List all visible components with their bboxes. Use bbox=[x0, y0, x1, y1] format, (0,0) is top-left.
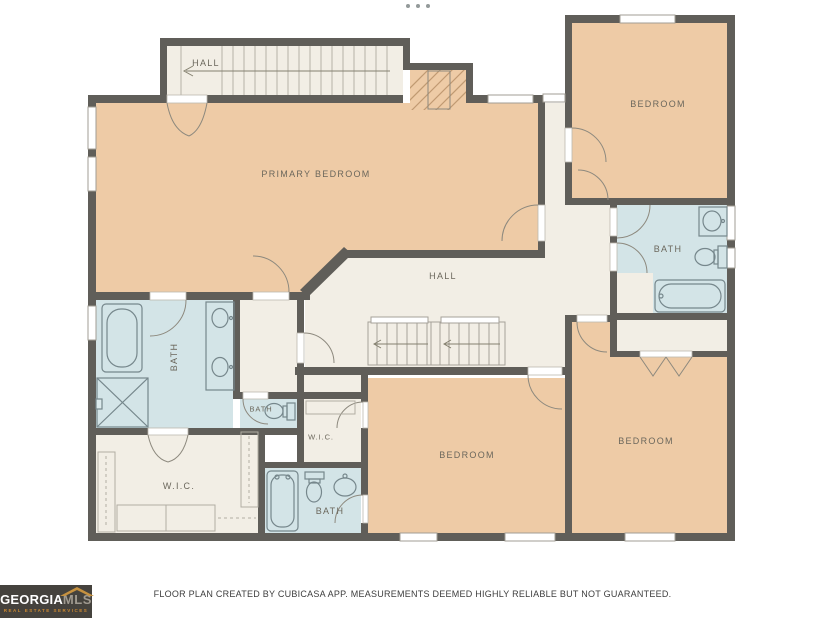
logo-brand-primary: GEORGIA bbox=[0, 593, 63, 606]
logo-tagline: REAL ESTATE SERVICES bbox=[4, 608, 88, 613]
floor-plan-page: HALL PRIMARY BEDROOM BEDROOM BATH HALL B… bbox=[0, 0, 825, 618]
roof-icon bbox=[59, 587, 95, 596]
disclaimer-text: FLOOR PLAN CREATED BY CUBICASA APP. MEAS… bbox=[0, 589, 825, 599]
floor-plan-drawing bbox=[0, 0, 825, 618]
georgia-mls-logo: GEORGIAMLS REAL ESTATE SERVICES bbox=[0, 585, 92, 618]
